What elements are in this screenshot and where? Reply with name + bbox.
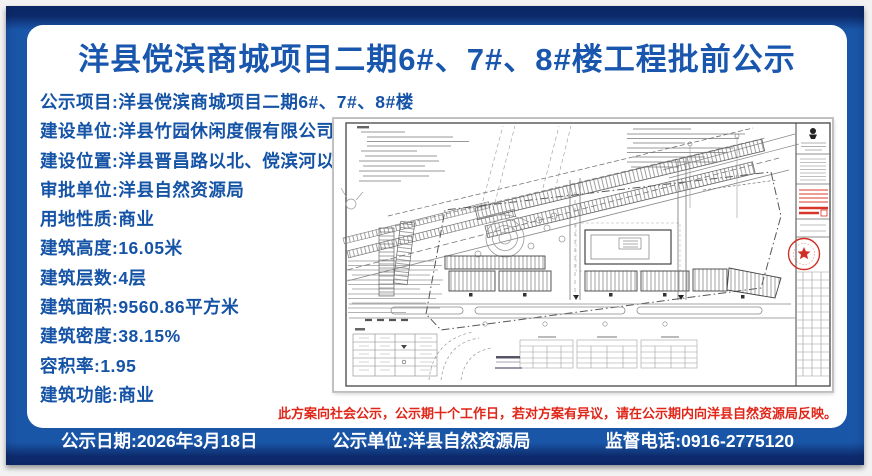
notice-poster: 洋县傥滨商城项目二期6#、7#、8#楼工程批前公示 公示项目:洋县傥滨商城项目二… bbox=[6, 6, 864, 465]
footer-phone: 监督电话:0916-2775120 bbox=[605, 428, 794, 453]
public-notice-statement: 此方案向社会公示，公示期十个工作日，若对方案有异议，请在公示期内向洋县自然资源局… bbox=[278, 403, 837, 422]
site-plan-svg bbox=[333, 118, 833, 392]
footer-date: 公示日期:2026年3月18日 bbox=[61, 428, 257, 453]
footer-bar: 公示日期:2026年3月18日 公示单位:洋县自然资源局 监督电话:0916-2… bbox=[6, 427, 864, 453]
page-title: 洋县傥滨商城项目二期6#、7#、8#楼工程批前公示 bbox=[27, 34, 847, 79]
content-panel: 洋县傥滨商城项目二期6#、7#、8#楼工程批前公示 公示项目:洋县傥滨商城项目二… bbox=[27, 25, 847, 428]
footer-unit: 公示单位:洋县自然资源局 bbox=[332, 428, 530, 453]
info-project: 公示项目:洋县傥滨商城项目二期6#、7#、8#楼 bbox=[40, 88, 414, 117]
site-plan-panel bbox=[333, 118, 833, 392]
